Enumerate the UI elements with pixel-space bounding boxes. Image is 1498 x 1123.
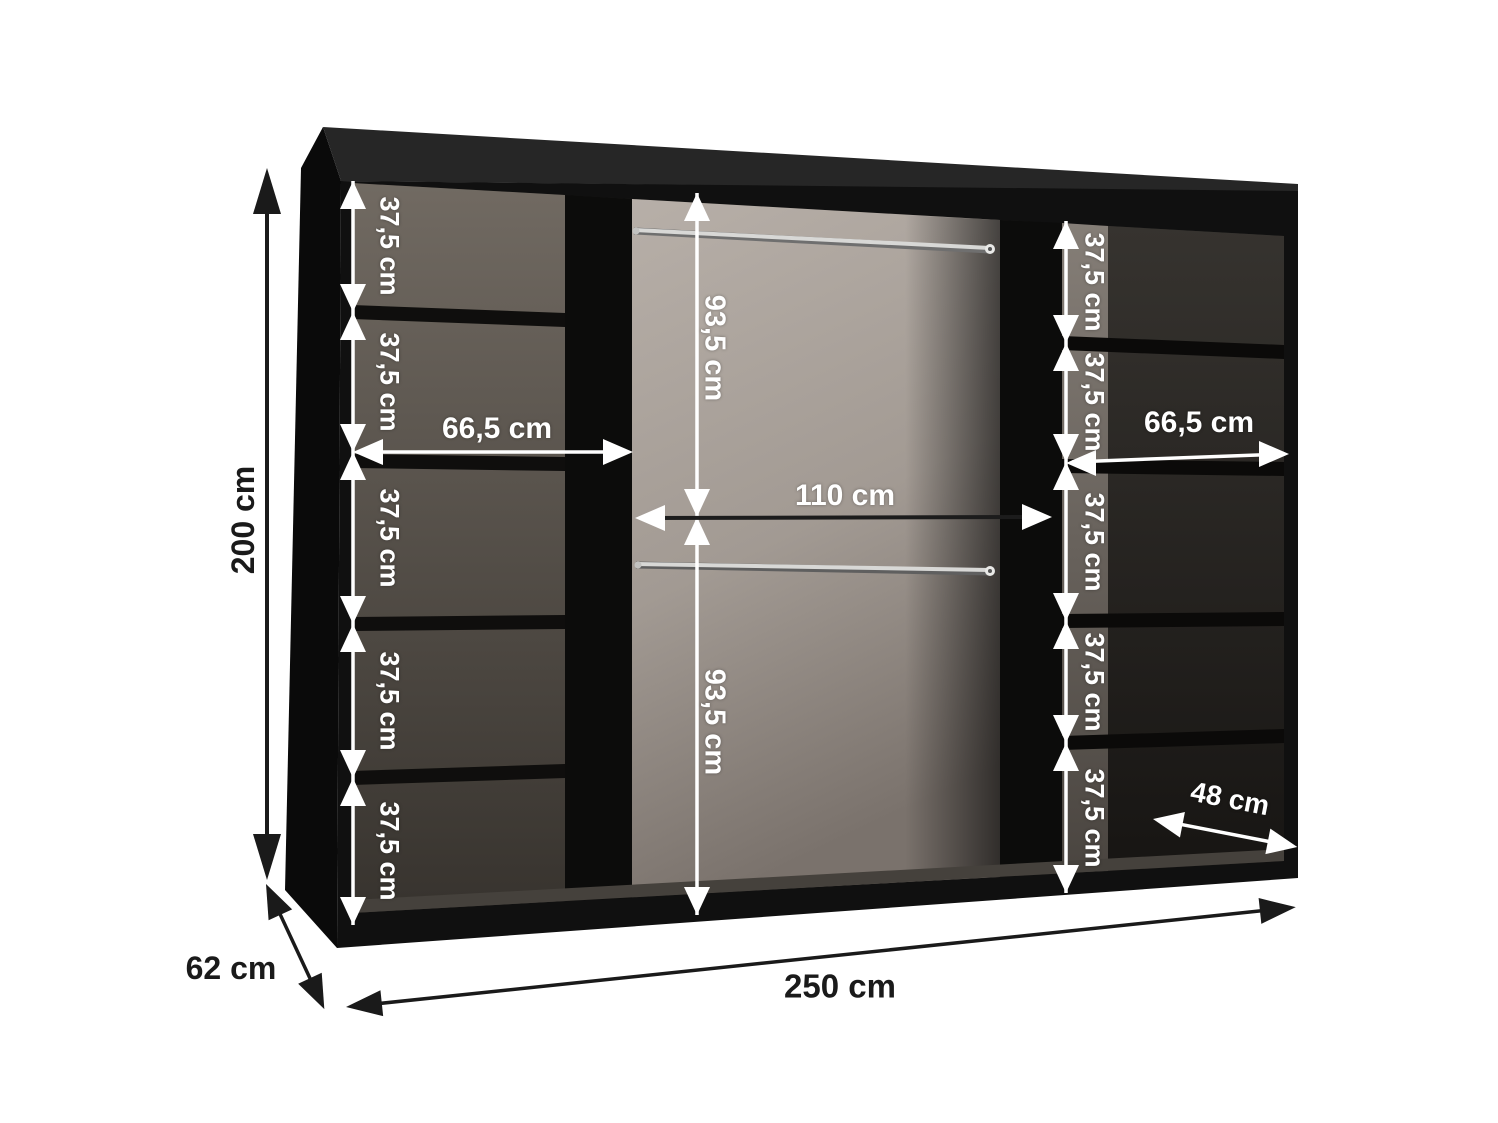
left-shelf-gap-label: 37,5 cm [376, 801, 403, 900]
right-shelf-gap-label: 37,5 cm [1081, 232, 1108, 331]
cabinet-side-panel [285, 127, 341, 948]
middle-width-label: 110 cm [795, 481, 895, 511]
lower-hanging-height-label: 93,5 cm [700, 669, 729, 775]
right-shelf-gap-label: 37,5 cm [1081, 632, 1108, 731]
left-shelf-width-label: 66,5 cm [442, 414, 552, 444]
left-divider-panel [565, 195, 632, 901]
right-column-back-panel [1108, 226, 1284, 871]
height-dimension-label: 200 cm [227, 466, 259, 575]
right-shelf-gap-label: 37,5 cm [1081, 768, 1108, 867]
cabinet-body [285, 127, 1298, 948]
width-dimension-label: 250 cm [784, 970, 896, 1003]
shelf-band [1062, 612, 1284, 628]
cabinet-top-panel [323, 127, 1298, 192]
right-shelf-gap-label: 37,5 cm [1081, 492, 1108, 591]
shelf-band [352, 615, 565, 631]
left-shelf-gap-label: 37,5 cm [376, 332, 403, 431]
right-divider-panel [1000, 220, 1062, 877]
left-shelf-gap-label: 37,5 cm [376, 196, 403, 295]
depth-dimension-label: 62 cm [186, 952, 277, 984]
left-shelf-gap-label: 37,5 cm [376, 488, 403, 587]
left-shelf-gap-label: 37,5 cm [376, 651, 403, 750]
right-shelf-gap-label: 37,5 cm [1081, 352, 1108, 451]
upper-hanging-height-label: 93,5 cm [700, 295, 729, 401]
middle-right-shadow [905, 215, 1000, 880]
wardrobe-dimension-diagram: 200 cm 62 cm 250 cm 66,5 cm 66,5 cm 110 … [0, 0, 1498, 1123]
right-shelf-width-label: 66,5 cm [1144, 408, 1254, 438]
